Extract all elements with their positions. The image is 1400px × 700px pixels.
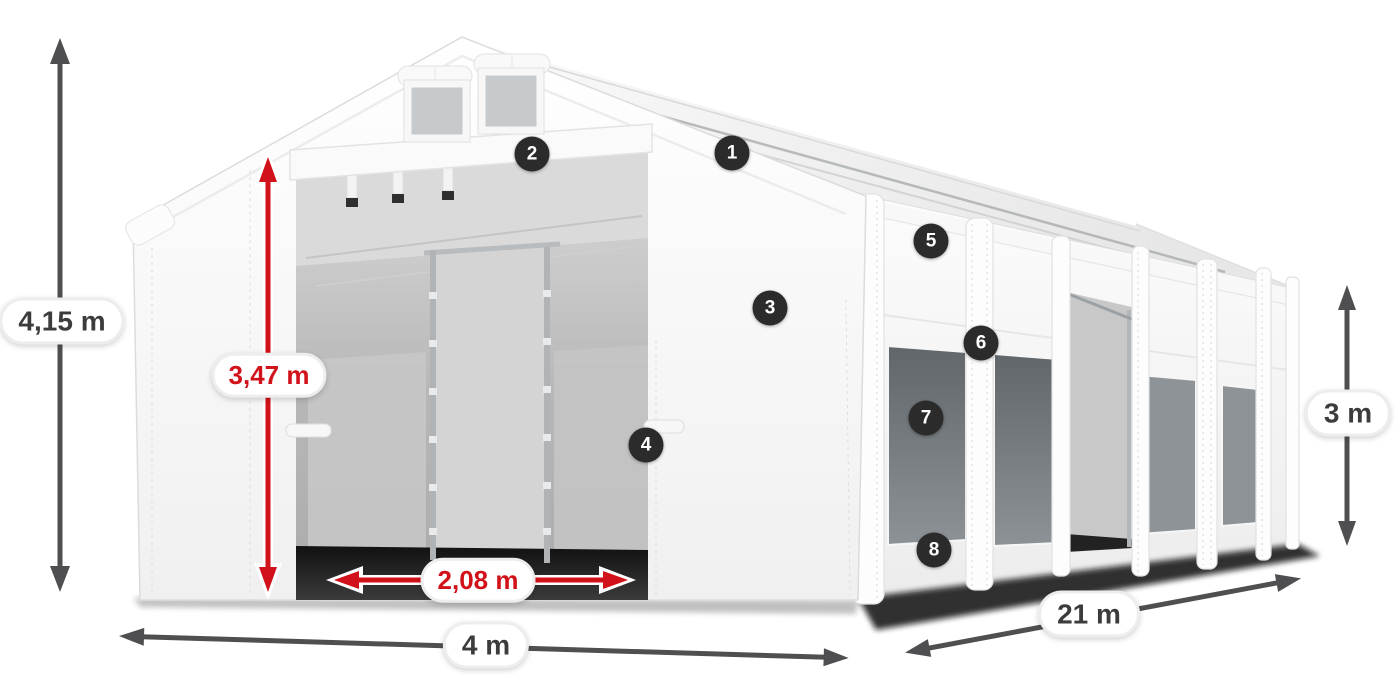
side-window — [1222, 385, 1258, 526]
tent-illustration — [0, 0, 1400, 700]
callout-8: 8 — [917, 533, 952, 568]
side-window — [994, 354, 1058, 546]
callout-5: 5 — [914, 224, 949, 259]
callout-2: 2 — [515, 137, 550, 172]
dimension-label-total-height: 4,15 m — [0, 298, 125, 345]
callout-4: 4 — [629, 428, 664, 463]
callout-7: 7 — [909, 401, 944, 436]
dimension-label-side-height: 3 m — [1305, 390, 1391, 437]
dimension-label-width: 4 m — [443, 622, 529, 669]
callout-1: 1 — [715, 136, 750, 171]
dimension-label-inner-height: 3,47 m — [212, 353, 327, 398]
front-entrance — [290, 124, 652, 600]
side-window — [888, 346, 966, 545]
tent-dimension-diagram: 4,15 m 3,47 m 2,08 m 4 m 21 m 3 m 1 2 3 … — [0, 0, 1400, 700]
dimension-label-length: 21 m — [1038, 591, 1140, 638]
dimension-label-door-width: 2,08 m — [421, 558, 536, 603]
side-door-opening — [1066, 292, 1132, 552]
inner-doorway — [436, 247, 544, 562]
interior-mesh-window — [308, 352, 426, 552]
callout-3: 3 — [753, 291, 788, 326]
callout-6: 6 — [964, 326, 999, 361]
